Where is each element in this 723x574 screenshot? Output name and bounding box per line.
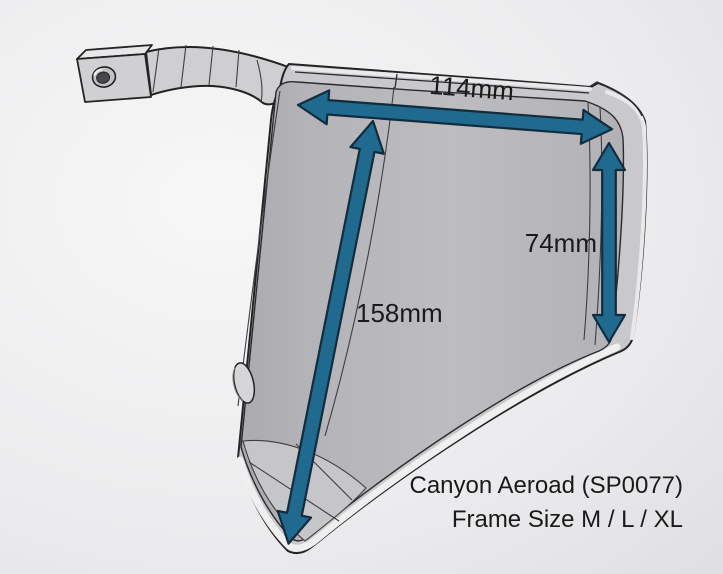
bracket-arm: [146, 47, 291, 104]
frame-pocket-illustration: 114mm 74mm 158mm Canyon Aeroad (SP0077) …: [0, 0, 723, 574]
length-dimension-label: 158mm: [356, 298, 443, 328]
caption-frame-size: Frame Size M / L / XL: [452, 506, 683, 533]
cad-render-canvas: 114mm 74mm 158mm Canyon Aeroad (SP0077) …: [0, 0, 723, 574]
height-dimension-label: 74mm: [525, 228, 597, 258]
caption-product-name: Canyon Aeroad (SP0077): [409, 472, 683, 499]
caption: Canyon Aeroad (SP0077) Frame Size M / L …: [409, 472, 683, 533]
mounting-bracket: [77, 45, 291, 104]
